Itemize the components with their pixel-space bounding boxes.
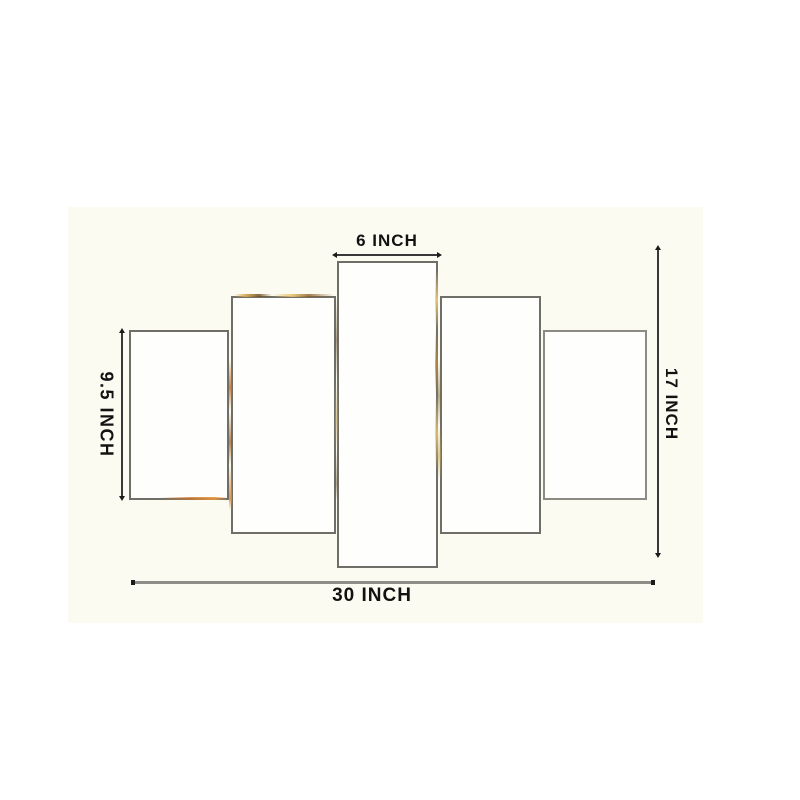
canvas-panel-5 xyxy=(543,330,647,500)
product-dimension-diagram: 6 INCH 9.5 INCH 17 INCH 30 INCH xyxy=(0,0,800,800)
dimension-label-top: 6 INCH xyxy=(317,231,457,251)
dimension-label-right: 17 INCH xyxy=(661,344,681,464)
dimension-label-bottom: 30 INCH xyxy=(302,585,442,607)
canvas-panel-2 xyxy=(231,296,336,534)
dimension-line-bottom xyxy=(133,581,653,584)
dimension-line-left xyxy=(121,333,123,496)
dimension-label-left: 9.5 INCH xyxy=(96,355,117,475)
canvas-panel-4 xyxy=(440,296,541,534)
dimension-line-right xyxy=(657,250,659,553)
dimension-line-top xyxy=(337,254,437,256)
canvas-panel-1 xyxy=(129,330,229,500)
canvas-panel-3 xyxy=(337,261,438,568)
